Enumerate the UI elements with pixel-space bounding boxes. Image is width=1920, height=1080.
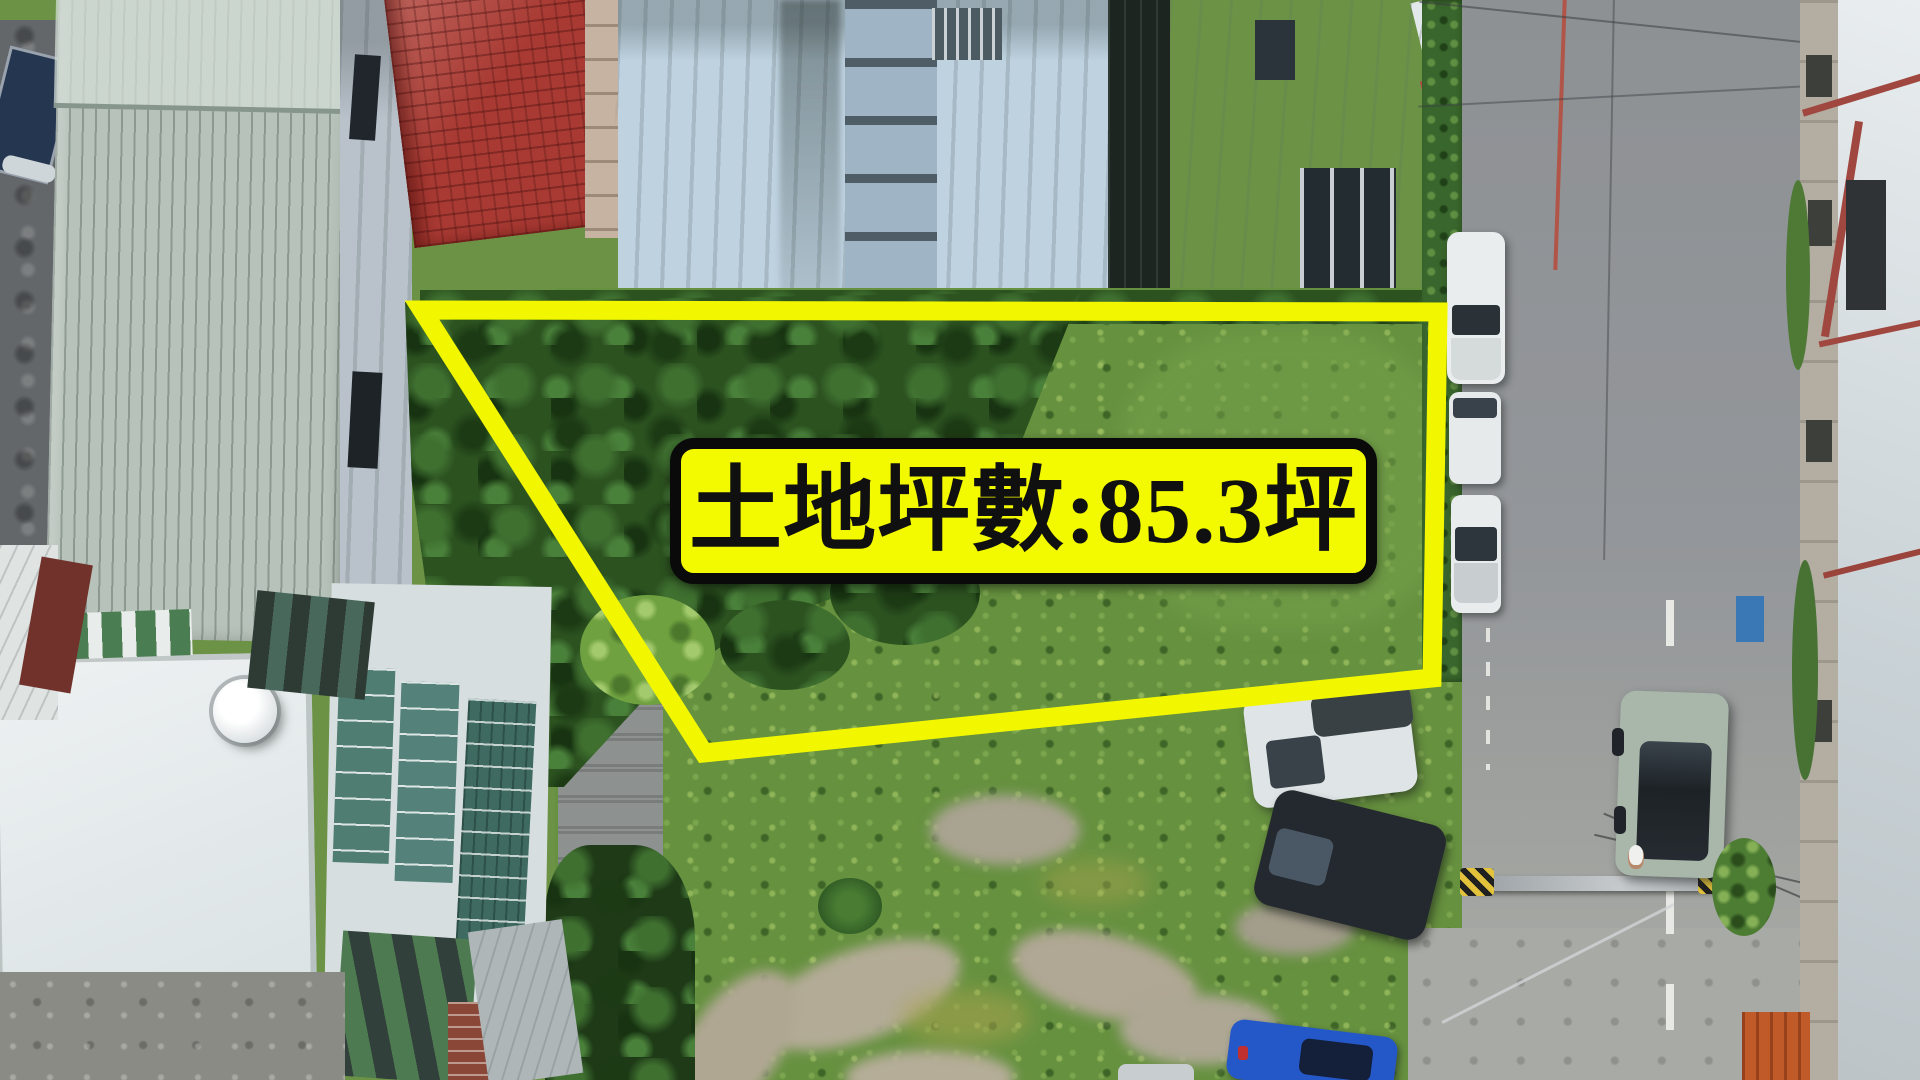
orange-shopfront	[1742, 1012, 1810, 1080]
sedan-windshield	[1455, 527, 1497, 561]
drain-grate	[1808, 200, 1832, 246]
apartment-stain	[780, 0, 840, 300]
dry-grass-tint	[1040, 860, 1150, 905]
blue-awning	[1736, 596, 1764, 642]
van-windshield	[1452, 305, 1500, 335]
suv-wheel	[1614, 806, 1626, 834]
warehouse-roof-upper-section	[54, 0, 352, 114]
balcony-grate	[932, 8, 1002, 60]
dark-doorway	[1846, 180, 1886, 310]
skylight-window	[348, 371, 383, 468]
apartment-gap-alley	[1108, 0, 1170, 296]
van-hood	[1451, 338, 1501, 380]
sedan-hood	[1454, 563, 1498, 603]
spiky-plant	[818, 878, 882, 934]
dry-grass-tint	[900, 990, 1030, 1045]
apartment-right-windows	[1300, 168, 1396, 293]
sidewalk-vine	[1792, 560, 1818, 780]
vent-strip	[247, 590, 375, 700]
utility-pole	[1472, 876, 1720, 891]
land-area-text: 土地坪數:85.3坪	[689, 465, 1358, 558]
minivan-windshield	[1265, 735, 1325, 789]
roadside-plant	[1712, 838, 1776, 936]
tree-blob	[720, 600, 850, 690]
apartment-right-window-small	[1255, 20, 1295, 80]
car-rear-glass	[1453, 398, 1497, 418]
sidewalk-vine	[1786, 180, 1810, 370]
bright-green-tree	[580, 595, 715, 705]
aerial-photo: 土地坪數:85.3坪	[0, 0, 1920, 1080]
drain-grate	[1806, 55, 1832, 97]
pole-hazard-stripes	[1460, 868, 1494, 896]
concrete-ground-bottom-left	[0, 972, 345, 1080]
silver-car-sliver	[1118, 1064, 1194, 1080]
pedestrian	[1628, 845, 1644, 869]
sidewalk-strip	[1800, 0, 1842, 1080]
drain-grate	[1806, 420, 1832, 462]
teal-skylight-panel	[395, 681, 460, 883]
dirt-patch	[930, 795, 1080, 865]
blue-car-taillight	[1238, 1046, 1248, 1060]
suv-windshield-roof	[1636, 741, 1712, 861]
teal-skylight-panel	[456, 698, 537, 946]
land-area-label: 土地坪數:85.3坪	[670, 438, 1377, 584]
suv-wheel	[1612, 728, 1624, 756]
apartment-balcony-column	[845, 0, 937, 300]
